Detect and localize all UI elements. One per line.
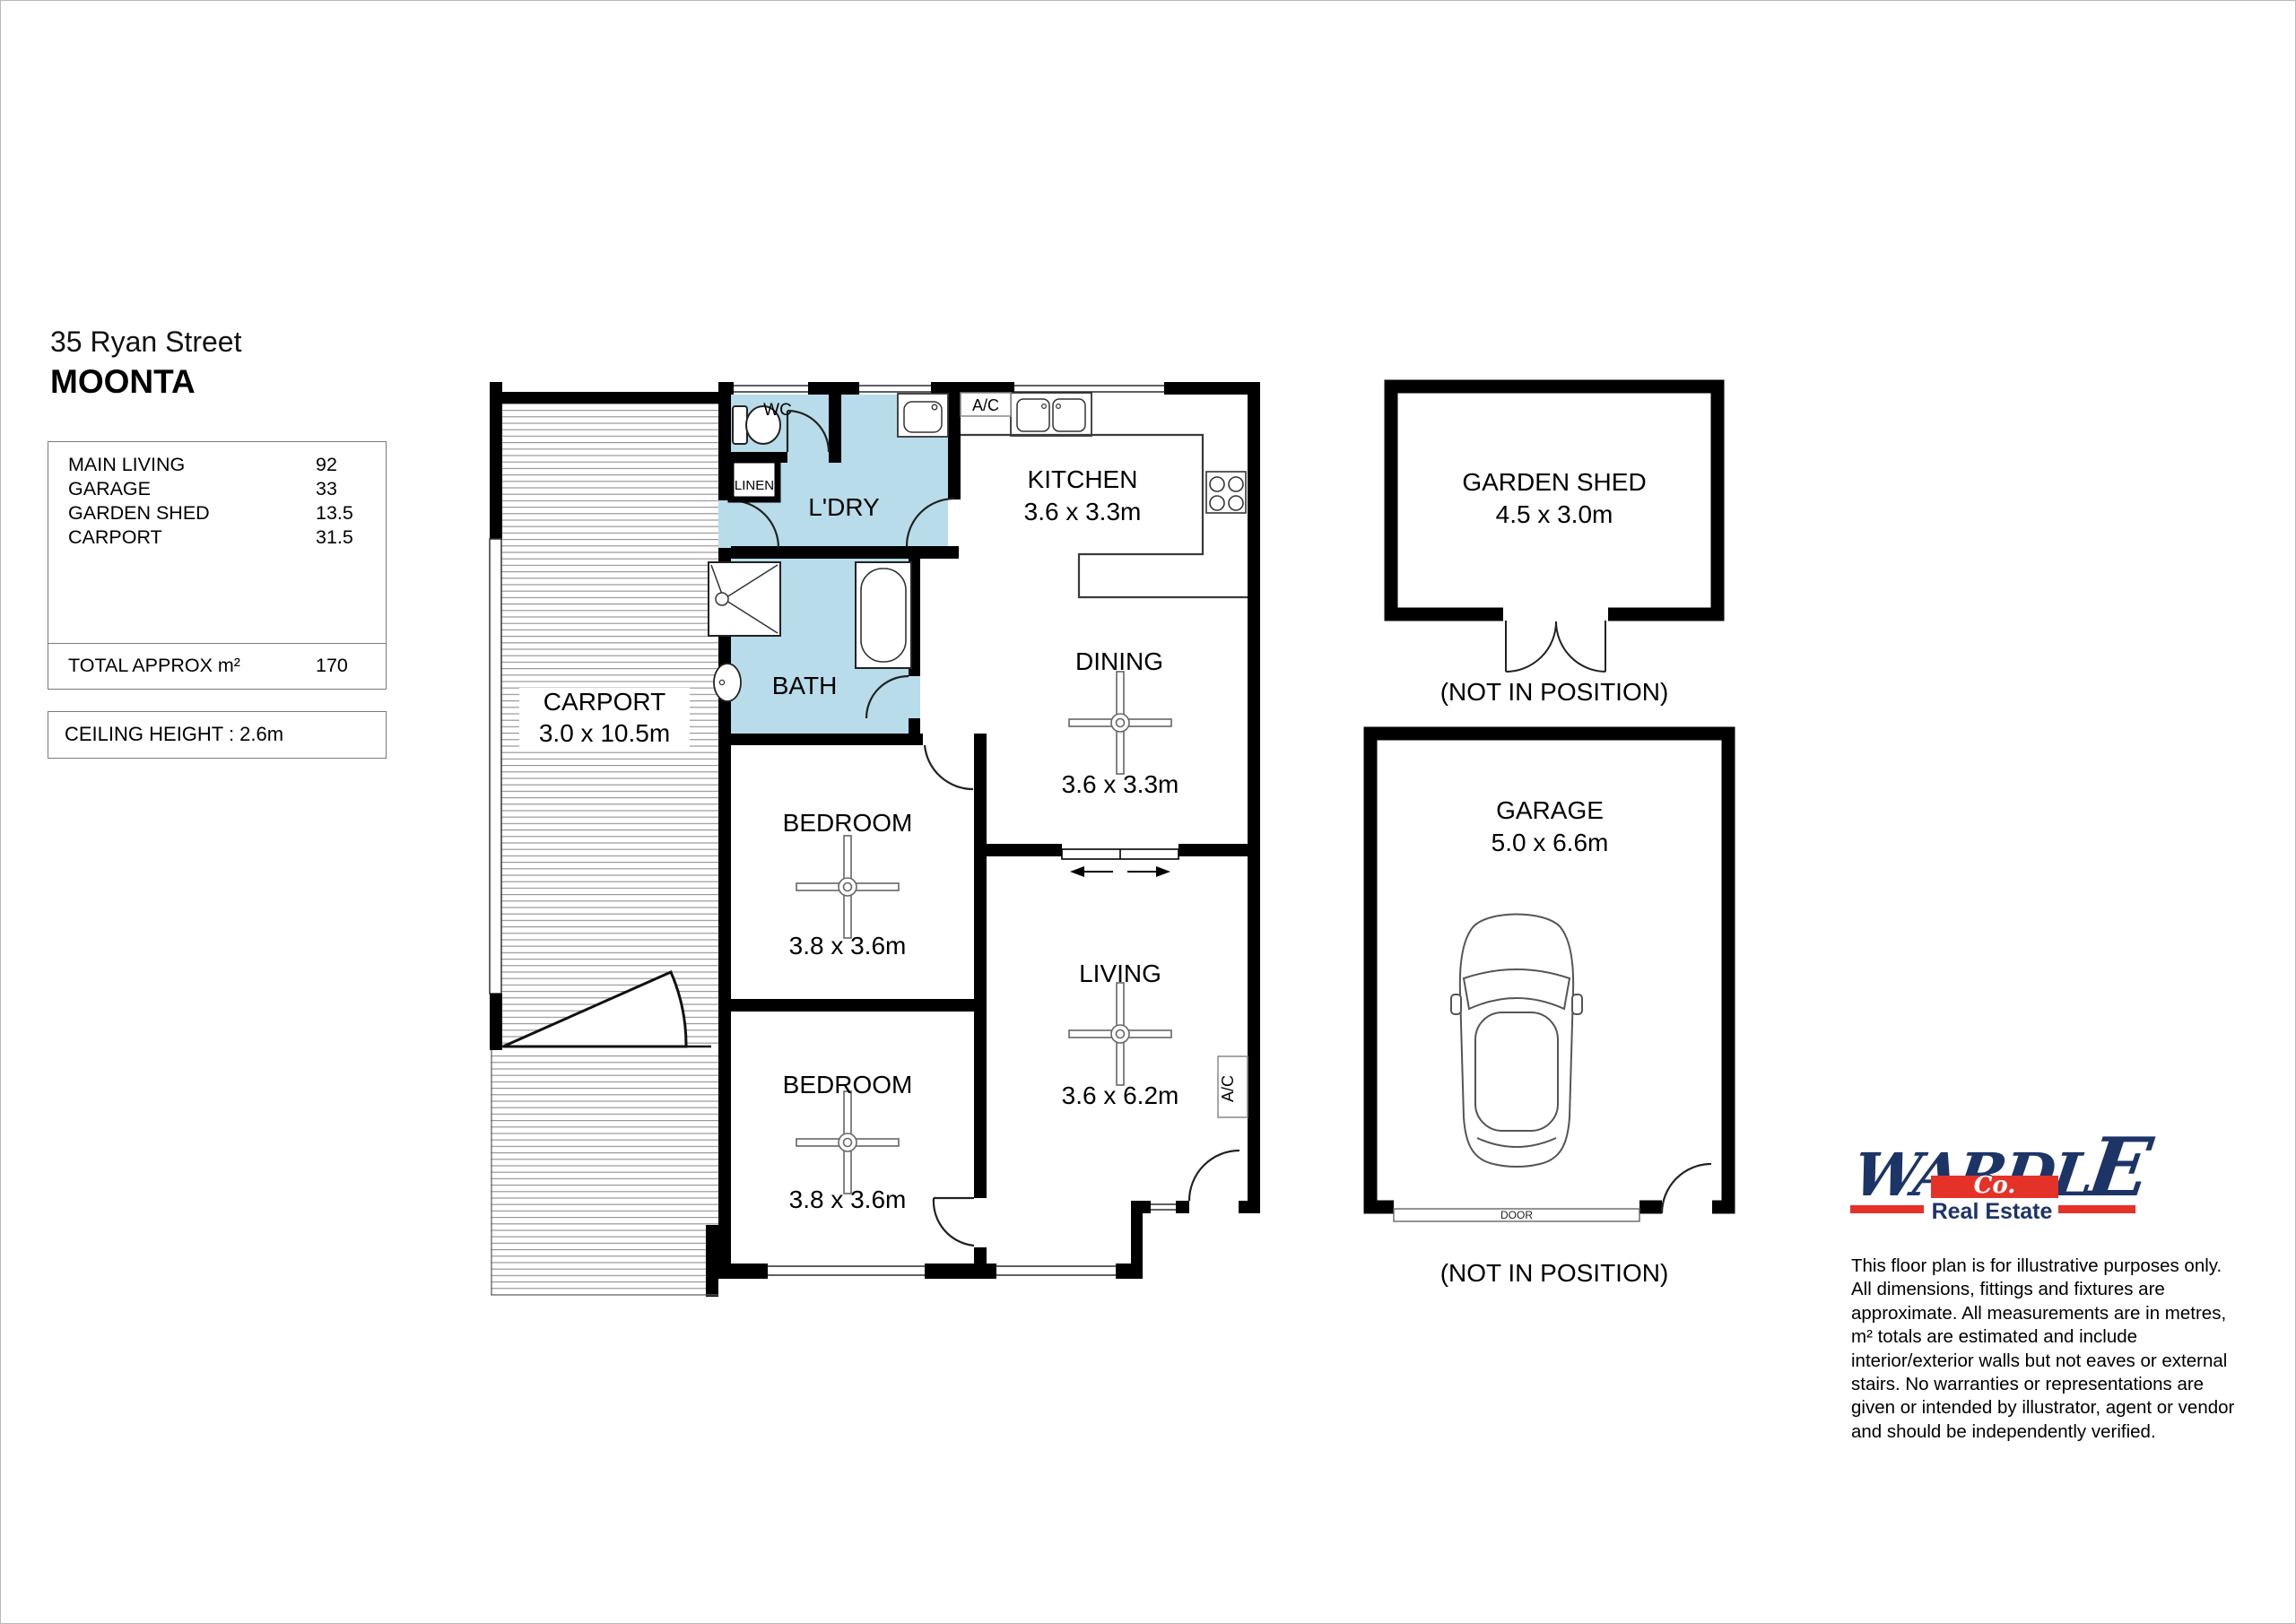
- shed-double-doors: [1506, 621, 1605, 672]
- cooktop-icon: [1206, 472, 1246, 513]
- disclaimer-line: stairs. No warranties or representations…: [1851, 1373, 2277, 1396]
- kitchen-sink-icon: [1011, 393, 1091, 436]
- disclaimer-line: m² totals are estimated and include: [1851, 1325, 2277, 1349]
- carport-fence: [490, 539, 501, 994]
- basin-icon: [714, 664, 741, 701]
- wardle-logo: WARDLE Co. Real Estate: [1848, 1129, 2144, 1232]
- room-label-garage: GARAGE: [1496, 796, 1604, 824]
- carport-post: [706, 1225, 718, 1297]
- ac-unit-kitchen: A/C: [961, 393, 1011, 416]
- room-dims-bedroom2: 3.8 x 3.6m: [789, 1185, 907, 1213]
- disclaimer-line: This floor plan is for illustrative purp…: [1851, 1255, 2277, 1278]
- logo-bar-right: [2058, 1205, 2135, 1213]
- house: LINEN: [709, 382, 1260, 1279]
- disclaimer-line: approximate. All measurements are in met…: [1851, 1302, 2277, 1325]
- carport-post: [490, 994, 502, 1050]
- floorplan-page: 35 Ryan Street MOONTA MAIN LIVING 92 GAR…: [0, 0, 2296, 1624]
- logo-co-badge: Co.: [1931, 1176, 2058, 1198]
- logo-tagline: Real Estate: [1926, 1199, 2058, 1225]
- room-label-bedroom2: BEDROOM: [783, 1071, 913, 1099]
- room-label-kitchen: KITCHEN: [1028, 465, 1138, 493]
- carport-post: [490, 382, 502, 539]
- ac-unit-living: A/C: [1218, 1056, 1248, 1117]
- bathtub-icon: [856, 562, 911, 668]
- room-label-bath: BATH: [772, 672, 838, 699]
- garage: DOOR GARAGE 5.0 x 6.6m (NOT IN POSITION): [1370, 734, 1728, 1287]
- garage-position-note: (NOT IN POSITION): [1440, 1259, 1669, 1287]
- room-label-living: LIVING: [1079, 960, 1161, 987]
- disclaimer-text: This floor plan is for illustrative purp…: [1851, 1255, 2277, 1444]
- room-label-laundry: L'DRY: [808, 493, 880, 521]
- room-label-linen: LINEN: [735, 478, 774, 493]
- room-label-bedroom1: BEDROOM: [783, 809, 913, 837]
- room-dims-garage: 5.0 x 6.6m: [1492, 829, 1609, 856]
- disclaimer-line: interior/exterior walls but not eaves or…: [1851, 1350, 2277, 1373]
- disclaimer-line: given or intended by illustrator, agent …: [1851, 1396, 2277, 1420]
- carport-area: CARPORT 3.0 x 10.5m: [490, 382, 718, 1297]
- room-dims-garden-shed: 4.5 x 3.0m: [1496, 500, 1613, 528]
- garage-door-label: DOOR: [1500, 1209, 1533, 1221]
- shower-icon: [709, 562, 780, 636]
- room-label-dining: DINING: [1075, 647, 1163, 675]
- carport-hatch: [491, 1052, 718, 1295]
- room-dims-living: 3.6 x 6.2m: [1062, 1081, 1179, 1109]
- room-dims-dining: 3.6 x 3.3m: [1062, 770, 1179, 798]
- carport-top-wall: [490, 392, 718, 404]
- logo-bar-left: [1850, 1205, 1924, 1213]
- room-dims-carport: 3.0 x 10.5m: [539, 719, 670, 747]
- room-dims-bedroom1: 3.8 x 3.6m: [789, 932, 907, 960]
- shed-position-note: (NOT IN POSITION): [1440, 678, 1669, 706]
- room-dims-kitchen: 3.6 x 3.3m: [1024, 498, 1142, 525]
- shed-door-opening: [1503, 605, 1608, 622]
- ac-label: A/C: [1219, 1075, 1237, 1102]
- disclaimer-line: and should be independently verified.: [1851, 1420, 2277, 1444]
- room-label-carport: CARPORT: [544, 688, 665, 716]
- laundry-trough-icon: [898, 394, 948, 437]
- room-label-garden-shed: GARDEN SHED: [1462, 468, 1646, 496]
- garage-side-door-opening: [1662, 1198, 1712, 1216]
- ac-label: A/C: [972, 396, 999, 414]
- disclaimer-line: All dimensions, fittings and fixtures ar…: [1851, 1278, 2277, 1301]
- room-label-wc: WC: [763, 401, 792, 420]
- garden-shed: GARDEN SHED 4.5 x 3.0m (NOT IN POSITION): [1391, 386, 1718, 706]
- car-icon: [1451, 915, 1582, 1168]
